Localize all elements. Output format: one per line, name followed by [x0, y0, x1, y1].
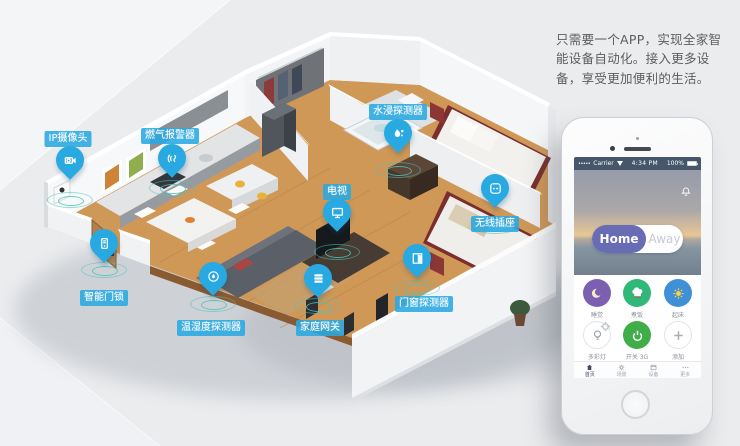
signal-ripple	[81, 262, 127, 278]
water-drops-icon	[384, 119, 412, 147]
device-label: 家庭网关	[296, 320, 344, 336]
notification-bell-icon[interactable]	[680, 183, 692, 202]
phone-mockup: ••••• Carrier 4:34 PM 100% Home Away	[561, 117, 713, 435]
device-label: 温湿度探测器	[177, 320, 245, 336]
clock: 4:34 PM	[626, 160, 664, 167]
door-sensor-icon	[403, 244, 431, 272]
keypad-lock-icon	[90, 229, 118, 257]
router-icon	[304, 264, 332, 292]
scene-cook-button[interactable]	[623, 279, 651, 307]
signal-ripple	[295, 298, 341, 314]
device-label: 电视	[323, 184, 351, 200]
signal-ripple	[190, 296, 236, 312]
proximity-sensor-dot	[636, 137, 639, 140]
gear-badge-icon	[598, 319, 613, 338]
scene-sleep-button[interactable]	[583, 279, 611, 307]
tab-scenes[interactable]: 场景	[606, 362, 638, 378]
plus-icon	[671, 328, 686, 343]
chef-hat-icon	[630, 286, 645, 301]
device-label: IP摄像头	[45, 131, 92, 147]
home-button[interactable]	[621, 390, 650, 419]
scene-light-button[interactable]	[583, 321, 611, 349]
scene-wake-button[interactable]	[664, 279, 692, 307]
signal-ripple	[149, 180, 195, 196]
mode-home-button[interactable]: Home	[592, 225, 646, 253]
tv-icon	[323, 198, 351, 226]
device-label: 智能门锁	[80, 290, 128, 306]
socket-icon	[481, 174, 509, 202]
device-pin-socket	[475, 168, 515, 208]
signal-ripple	[314, 244, 360, 260]
smart-home-promo: 只需要一个APP，实现全家智能设备自动化。接入更多设备，享受更加便利的生活。 I…	[0, 0, 740, 446]
moon-icon	[590, 286, 605, 301]
sun-icon	[671, 286, 686, 301]
device-pin-temp-humidity	[193, 256, 233, 296]
device-label: 水浸探测器	[369, 104, 427, 120]
device-pin-gas-alarm	[152, 138, 192, 178]
device-label: 无线插座	[471, 216, 519, 232]
scene-grid: 睡觉 煮饭 起床 多彩灯 开关 3G 添加	[574, 275, 701, 361]
scene-add-button[interactable]	[664, 321, 692, 349]
signal-ripple	[394, 280, 440, 296]
scene-label: 起床	[658, 310, 698, 319]
signal-ripple	[47, 192, 93, 208]
signal-dots: •••••	[578, 161, 590, 167]
earpiece-speaker	[624, 147, 651, 151]
status-bar: ••••• Carrier 4:34 PM 100%	[574, 157, 701, 170]
intro-text: 只需要一个APP，实现全家智能设备自动化。接入更多设备，享受更加便利的生活。	[556, 30, 734, 88]
wifi-icon	[617, 161, 623, 166]
more-icon	[681, 363, 690, 372]
scene-label: 开关 3G	[617, 352, 657, 361]
gas-waves-icon	[158, 144, 186, 172]
gear-icon	[617, 363, 626, 372]
scene-label: 添加	[658, 352, 698, 361]
device-pin-door-window	[397, 238, 437, 278]
gear-badge-icon	[639, 318, 654, 337]
front-camera-dot	[610, 146, 615, 151]
battery-percent: 100%	[667, 160, 684, 167]
home-icon	[585, 363, 594, 372]
tab-bar: 首页 场景 设备 更多	[574, 361, 701, 378]
sky-backdrop: Home Away	[574, 170, 701, 275]
humidity-icon	[199, 262, 227, 290]
tab-more[interactable]: 更多	[669, 362, 701, 378]
carrier-label: Carrier	[593, 160, 614, 167]
scene-label: 睡觉	[577, 310, 617, 319]
scene-power-button[interactable]	[623, 321, 651, 349]
device-pin-gateway	[298, 258, 338, 298]
battery-icon	[687, 161, 697, 166]
video-camera-icon	[56, 146, 84, 174]
scene-label: 多彩灯	[577, 352, 617, 361]
devices-icon	[649, 363, 658, 372]
mode-toggle[interactable]: Home Away	[592, 225, 683, 253]
phone-screen: ••••• Carrier 4:34 PM 100% Home Away	[574, 157, 701, 378]
device-label: 门窗探测器	[395, 296, 453, 312]
tab-devices[interactable]: 设备	[638, 362, 670, 378]
tab-home[interactable]: 首页	[574, 362, 606, 378]
mode-away-button[interactable]: Away	[646, 232, 683, 246]
device-label: 燃气报警器	[141, 128, 199, 144]
signal-ripple	[375, 162, 421, 178]
device-pin-door-lock	[84, 223, 124, 263]
